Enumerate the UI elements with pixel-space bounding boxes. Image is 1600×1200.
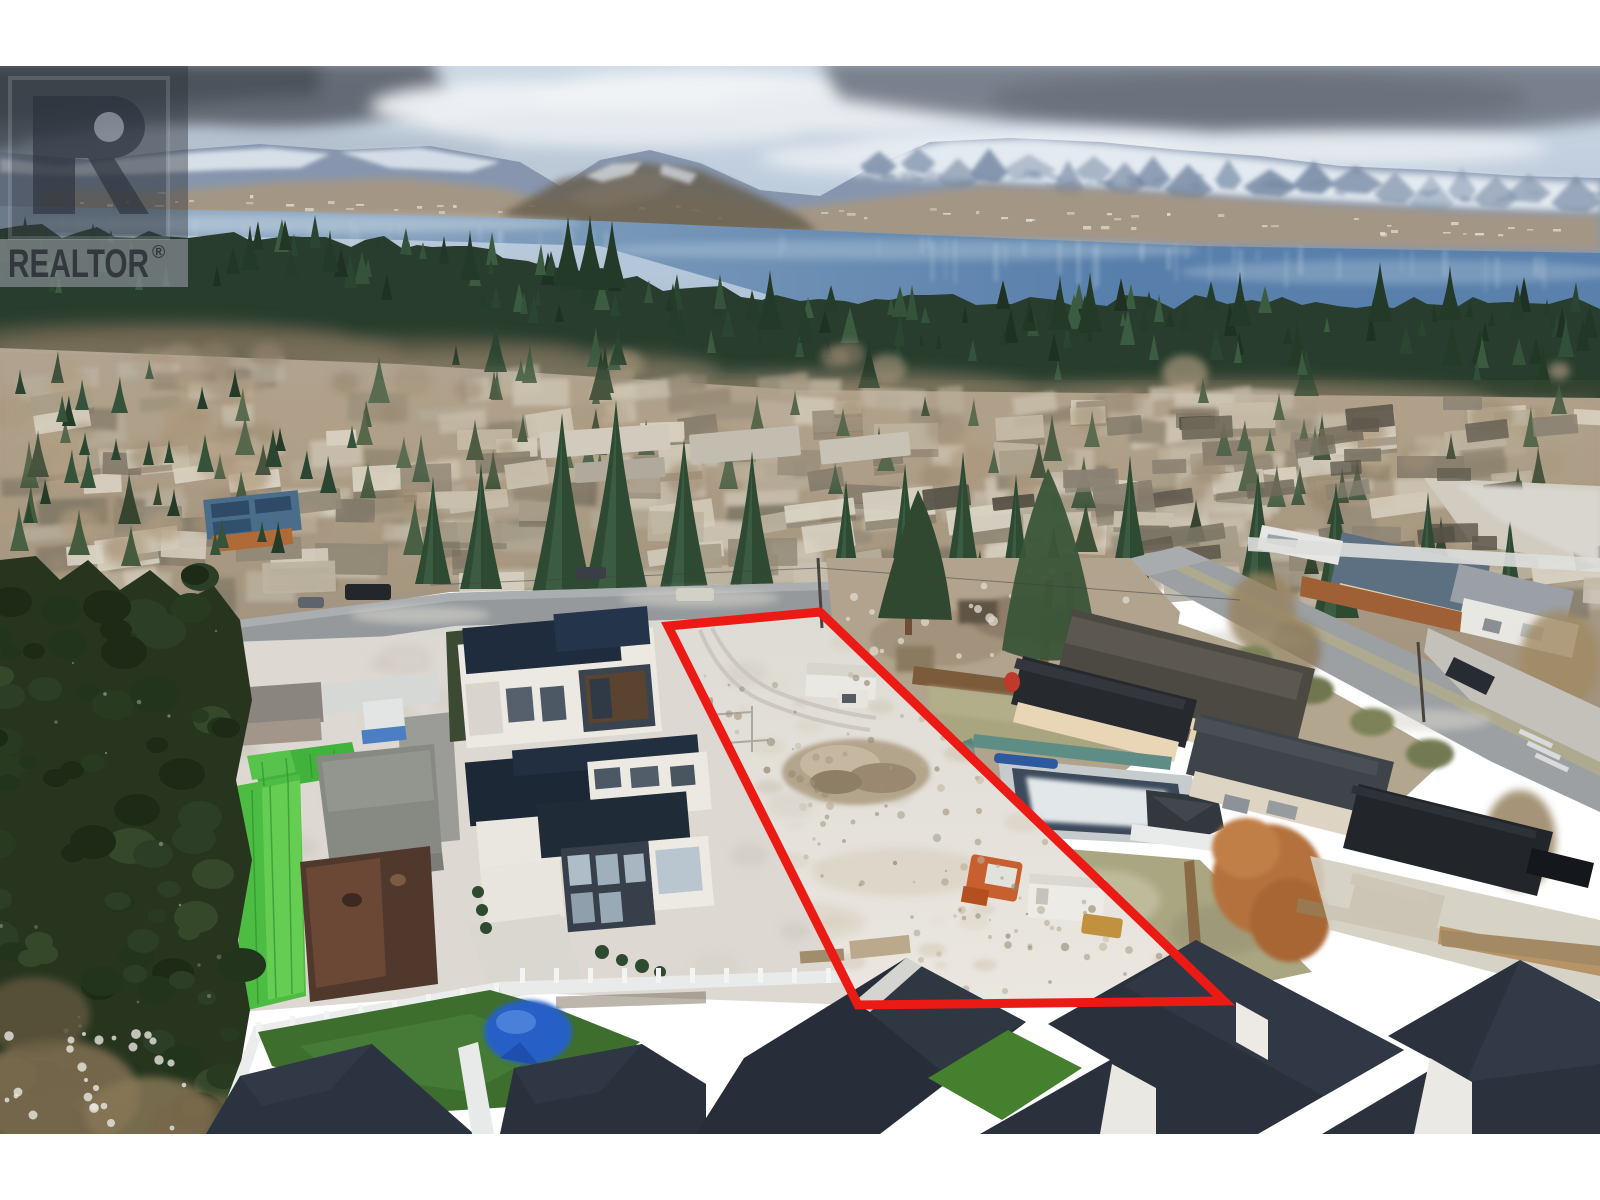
svg-text:®: ® xyxy=(152,242,165,262)
svg-text:REALTOR: REALTOR xyxy=(8,242,149,286)
